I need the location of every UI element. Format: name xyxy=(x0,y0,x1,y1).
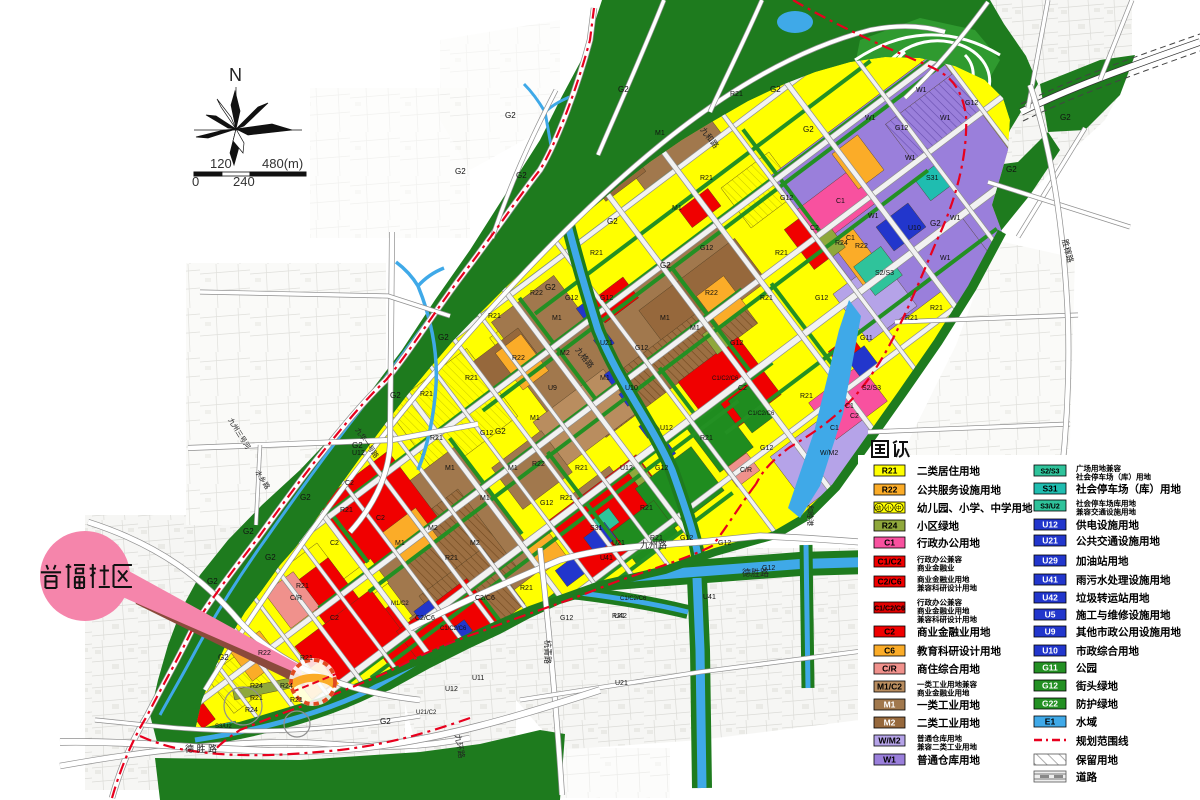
svg-text:公共服务设施用地: 公共服务设施用地 xyxy=(917,484,1001,497)
svg-text:C6: C6 xyxy=(884,646,895,656)
svg-text:S2/S3: S2/S3 xyxy=(1040,469,1059,476)
svg-text:R21: R21 xyxy=(430,435,443,442)
svg-text:W1: W1 xyxy=(883,755,896,765)
svg-text:E1: E1 xyxy=(1045,717,1056,727)
svg-text:C2: C2 xyxy=(884,627,895,637)
svg-text:W1: W1 xyxy=(868,213,879,220)
svg-text:G12: G12 xyxy=(895,125,908,132)
svg-text:W1: W1 xyxy=(905,155,916,162)
svg-text:U41: U41 xyxy=(703,594,716,601)
svg-text:M1: M1 xyxy=(884,700,896,710)
svg-text:U41: U41 xyxy=(600,555,613,562)
svg-text:S3/U2: S3/U2 xyxy=(1040,504,1060,511)
svg-text:U10: U10 xyxy=(625,385,638,392)
svg-text:U21: U21 xyxy=(612,540,625,547)
svg-text:M1: M1 xyxy=(600,375,610,382)
svg-text:G12: G12 xyxy=(730,340,743,347)
svg-text:R21: R21 xyxy=(930,305,943,312)
svg-text:G12: G12 xyxy=(965,100,978,107)
svg-text:G2: G2 xyxy=(218,653,229,662)
svg-text:C2/C6: C2/C6 xyxy=(415,615,435,622)
svg-text:兼容二类工业用地: 兼容二类工业用地 xyxy=(916,742,977,752)
svg-text:广场用地兼容: 广场用地兼容 xyxy=(1076,463,1121,473)
svg-text:M1: M1 xyxy=(552,315,562,322)
svg-text:G11: G11 xyxy=(860,335,873,342)
svg-text:C2: C2 xyxy=(330,615,339,622)
svg-text:G12: G12 xyxy=(680,535,693,542)
svg-text:U12: U12 xyxy=(445,686,458,693)
svg-text:垃圾转运站用地: 垃圾转运站用地 xyxy=(1076,592,1150,605)
svg-text:G12: G12 xyxy=(560,615,573,622)
svg-text:U5: U5 xyxy=(1045,610,1056,620)
svg-text:德 胜 路: 德 胜 路 xyxy=(185,743,217,754)
svg-text:C2: C2 xyxy=(330,540,339,547)
svg-text:市政综合用地: 市政综合用地 xyxy=(1076,645,1139,658)
svg-text:G2: G2 xyxy=(505,111,516,120)
svg-text:G12: G12 xyxy=(700,245,713,252)
svg-text:C2: C2 xyxy=(345,480,354,487)
svg-text:U21: U21 xyxy=(615,680,628,687)
svg-text:R21: R21 xyxy=(700,435,713,442)
svg-text:R21: R21 xyxy=(882,466,898,476)
svg-text:C1/C2/C6: C1/C2/C6 xyxy=(874,606,905,613)
svg-text:G12: G12 xyxy=(1042,681,1058,691)
svg-text:R22: R22 xyxy=(532,461,545,468)
svg-text:C1/C2/C6: C1/C2/C6 xyxy=(712,376,739,382)
svg-text:行政办公兼容: 行政办公兼容 xyxy=(916,554,962,564)
svg-text:G2: G2 xyxy=(545,283,556,292)
svg-text:R21: R21 xyxy=(340,507,353,514)
svg-text:C1/C2/C6: C1/C2/C6 xyxy=(440,626,467,632)
svg-text:120: 120 xyxy=(210,156,232,171)
svg-text:R21: R21 xyxy=(730,91,743,98)
svg-text:C2: C2 xyxy=(810,225,819,232)
svg-text:W1: W1 xyxy=(865,115,876,122)
svg-text:R24: R24 xyxy=(280,683,293,690)
svg-text:商业金融业: 商业金融业 xyxy=(917,563,955,573)
svg-text:R21: R21 xyxy=(760,295,773,302)
svg-text:街头绿地: 街头绿地 xyxy=(1075,680,1118,693)
svg-text:R21: R21 xyxy=(520,585,533,592)
svg-text:U21: U21 xyxy=(1042,536,1058,546)
svg-text:M1: M1 xyxy=(395,540,405,547)
svg-text:杭青路: 杭青路 xyxy=(543,640,553,664)
svg-text:保留用地: 保留用地 xyxy=(1075,754,1118,767)
svg-text:S31: S31 xyxy=(590,525,603,532)
svg-text:普通仓库用地: 普通仓库用地 xyxy=(917,733,962,743)
svg-text:C1/C2/C6: C1/C2/C6 xyxy=(748,411,775,417)
svg-text:G2: G2 xyxy=(660,261,671,270)
svg-text:G2: G2 xyxy=(243,527,254,536)
svg-text:G2: G2 xyxy=(770,85,781,94)
svg-text:G2: G2 xyxy=(300,493,311,502)
svg-text:G12: G12 xyxy=(760,445,773,452)
svg-text:W1: W1 xyxy=(916,87,927,94)
svg-text:G2: G2 xyxy=(265,553,276,562)
svg-text:教育科研设计用地: 教育科研设计用地 xyxy=(916,645,1001,658)
svg-text:R24: R24 xyxy=(835,240,848,247)
svg-text:0: 0 xyxy=(192,174,199,189)
svg-text:R22: R22 xyxy=(855,243,868,250)
svg-text:R24: R24 xyxy=(245,707,258,714)
svg-text:G2: G2 xyxy=(618,85,629,94)
svg-text:M2: M2 xyxy=(560,350,570,357)
svg-text:G22: G22 xyxy=(1042,699,1058,709)
svg-text:C2: C2 xyxy=(376,515,385,522)
svg-text:S2/S3: S2/S3 xyxy=(875,270,894,277)
svg-text:C2/C6: C2/C6 xyxy=(877,577,901,587)
svg-text:水域: 水域 xyxy=(1075,716,1098,729)
svg-text:U21: U21 xyxy=(600,340,613,347)
svg-text:德胜路: 德胜路 xyxy=(742,567,769,578)
svg-text:U10: U10 xyxy=(1042,646,1058,656)
svg-text:U21/C2: U21/C2 xyxy=(416,710,437,716)
svg-text:C/R: C/R xyxy=(290,595,302,602)
svg-text:U29: U29 xyxy=(1042,556,1058,566)
svg-text:九州路: 九州路 xyxy=(640,539,667,550)
svg-text:兼容科研设计用地: 兼容科研设计用地 xyxy=(916,614,977,624)
svg-text:G2: G2 xyxy=(1006,165,1017,174)
svg-text:U9: U9 xyxy=(1045,627,1056,637)
svg-text:雨污水处理设施用地: 雨污水处理设施用地 xyxy=(1076,574,1171,587)
svg-text:G12: G12 xyxy=(815,295,828,302)
svg-text:R22: R22 xyxy=(882,485,898,495)
svg-text:C/R: C/R xyxy=(882,664,897,674)
svg-text:商业金融业用地: 商业金融业用地 xyxy=(917,606,970,616)
svg-text:G2: G2 xyxy=(455,167,466,176)
svg-text:M1/C2: M1/C2 xyxy=(391,601,409,607)
svg-text:其他市政公用设施用地: 其他市政公用设施用地 xyxy=(1076,626,1181,639)
svg-text:G12: G12 xyxy=(565,295,578,302)
svg-text:S31: S31 xyxy=(926,175,939,182)
svg-text:G12: G12 xyxy=(718,540,731,547)
svg-text:G12: G12 xyxy=(780,195,793,202)
svg-text:R21: R21 xyxy=(590,250,603,257)
svg-text:C1: C1 xyxy=(845,403,854,410)
svg-text:二类工业用地: 二类工业用地 xyxy=(917,717,980,730)
svg-text:C2: C2 xyxy=(850,413,859,420)
svg-text:G2: G2 xyxy=(803,125,814,134)
svg-text:G12: G12 xyxy=(480,430,493,437)
svg-text:公园: 公园 xyxy=(1076,663,1097,675)
svg-text:M1: M1 xyxy=(690,325,700,332)
svg-text:M1: M1 xyxy=(508,465,518,472)
svg-text:R21: R21 xyxy=(300,655,313,662)
svg-text:商住综合用地: 商住综合用地 xyxy=(917,663,980,676)
svg-text:S3/U2: S3/U2 xyxy=(215,724,232,730)
svg-text:G12: G12 xyxy=(635,345,648,352)
svg-text:240: 240 xyxy=(233,174,255,189)
svg-text:M1: M1 xyxy=(530,415,540,422)
svg-text:G2: G2 xyxy=(438,333,449,342)
svg-text:U11: U11 xyxy=(472,675,484,682)
svg-text:和睦港: 和睦港 xyxy=(806,505,815,526)
svg-text:M1: M1 xyxy=(660,315,670,322)
svg-text:G12: G12 xyxy=(540,500,553,507)
svg-text:C1/C2: C1/C2 xyxy=(877,557,901,567)
svg-text:M1: M1 xyxy=(480,495,490,502)
svg-text:U12: U12 xyxy=(1042,520,1058,530)
svg-text:R21: R21 xyxy=(560,495,573,502)
svg-text:商业金融业用地: 商业金融业用地 xyxy=(917,688,970,698)
svg-text:R21: R21 xyxy=(905,315,918,322)
svg-text:幼儿园、小学、中学用地: 幼儿园、小学、中学用地 xyxy=(917,502,1033,515)
svg-text:U12: U12 xyxy=(620,465,633,472)
svg-text:社会停车场库用地: 社会停车场库用地 xyxy=(1075,498,1136,508)
svg-text:R21: R21 xyxy=(575,465,588,472)
svg-text:小区绿地: 小区绿地 xyxy=(916,520,959,533)
svg-text:小: 小 xyxy=(886,504,892,512)
svg-text:R22: R22 xyxy=(512,355,525,362)
svg-text:G2: G2 xyxy=(516,171,527,180)
svg-text:加油站用地: 加油站用地 xyxy=(1075,555,1129,568)
svg-text:G2: G2 xyxy=(1060,113,1071,122)
svg-text:R21: R21 xyxy=(296,583,309,590)
svg-text:R22: R22 xyxy=(705,290,718,297)
svg-text:W/M2: W/M2 xyxy=(878,736,900,746)
svg-text:兼容交通设施用地: 兼容交通设施用地 xyxy=(1075,507,1136,517)
svg-text:R24: R24 xyxy=(250,683,263,690)
svg-text:M1: M1 xyxy=(655,130,665,137)
svg-text:W1: W1 xyxy=(940,255,951,262)
svg-text:R21: R21 xyxy=(445,555,458,562)
svg-text:R21: R21 xyxy=(290,697,303,704)
svg-text:U12: U12 xyxy=(352,450,365,457)
svg-text:兼容科研设计用地: 兼容科研设计用地 xyxy=(916,583,977,593)
svg-text:一类工业用地: 一类工业用地 xyxy=(917,699,980,712)
svg-text:G2: G2 xyxy=(390,391,401,400)
svg-text:U42: U42 xyxy=(614,613,627,620)
svg-text:M1: M1 xyxy=(672,205,682,212)
svg-text:480(m): 480(m) xyxy=(262,156,303,171)
svg-text:R21: R21 xyxy=(700,175,713,182)
svg-text:U42: U42 xyxy=(1042,593,1058,603)
svg-text:中: 中 xyxy=(896,504,902,512)
svg-text:C2/C6: C2/C6 xyxy=(475,595,495,602)
svg-text:普通仓库用地: 普通仓库用地 xyxy=(917,754,980,767)
svg-text:商业金融业用地: 商业金融业用地 xyxy=(917,574,970,584)
svg-text:G2: G2 xyxy=(607,217,618,226)
svg-text:M2: M2 xyxy=(470,540,480,547)
svg-text:N: N xyxy=(229,65,242,85)
svg-text:G2: G2 xyxy=(380,717,391,726)
svg-text:M1: M1 xyxy=(445,465,455,472)
svg-text:R22: R22 xyxy=(258,650,271,657)
svg-text:C1: C1 xyxy=(884,538,895,548)
svg-text:G12: G12 xyxy=(600,295,613,302)
svg-text:商业金融业用地: 商业金融业用地 xyxy=(917,626,991,639)
svg-text:公共交通设施用地: 公共交通设施用地 xyxy=(1076,535,1160,548)
svg-text:行政办公用地: 行政办公用地 xyxy=(916,537,980,550)
svg-text:C2: C2 xyxy=(738,385,747,392)
svg-text:G12: G12 xyxy=(655,465,668,472)
svg-text:U9: U9 xyxy=(548,385,557,392)
svg-text:W1: W1 xyxy=(950,215,961,222)
svg-text:R22: R22 xyxy=(530,290,543,297)
svg-text:R21: R21 xyxy=(488,313,501,320)
svg-text:S2/S3: S2/S3 xyxy=(862,385,881,392)
svg-text:C1: C1 xyxy=(836,198,845,205)
svg-text:U41: U41 xyxy=(1042,575,1058,585)
svg-text:R21: R21 xyxy=(640,505,653,512)
svg-text:R21: R21 xyxy=(465,375,478,382)
svg-text:社会停车场（库）用地: 社会停车场（库）用地 xyxy=(1075,472,1151,482)
svg-text:C1: C1 xyxy=(830,425,839,432)
svg-text:防护绿地: 防护绿地 xyxy=(1076,698,1118,711)
svg-text:R24: R24 xyxy=(882,521,898,531)
svg-text:W1: W1 xyxy=(940,115,951,122)
svg-text:G2: G2 xyxy=(930,219,941,228)
svg-text:行政办公兼容: 行政办公兼容 xyxy=(916,597,962,607)
svg-text:R21: R21 xyxy=(420,391,433,398)
svg-text:幼: 幼 xyxy=(876,504,882,512)
svg-text:M2: M2 xyxy=(428,525,438,532)
svg-text:社会停车场（库）用地: 社会停车场（库）用地 xyxy=(1075,483,1181,496)
svg-text:C1/C2/C6: C1/C2/C6 xyxy=(620,596,647,602)
svg-text:U12: U12 xyxy=(660,425,673,432)
svg-text:W/M2: W/M2 xyxy=(820,450,838,457)
svg-text:G2: G2 xyxy=(495,427,506,436)
svg-text:G11: G11 xyxy=(1042,663,1058,673)
svg-text:G2: G2 xyxy=(207,577,218,586)
svg-text:道路: 道路 xyxy=(1076,771,1098,784)
svg-text:R21: R21 xyxy=(775,250,788,257)
svg-text:M1/C2: M1/C2 xyxy=(877,682,902,692)
svg-text:C/R: C/R xyxy=(740,467,752,474)
svg-text:S31: S31 xyxy=(1042,484,1057,494)
svg-text:一类工业用地兼容: 一类工业用地兼容 xyxy=(917,679,977,689)
svg-text:供电设施用地: 供电设施用地 xyxy=(1075,519,1139,532)
svg-text:R21: R21 xyxy=(800,393,813,400)
svg-text:M2: M2 xyxy=(884,718,896,728)
svg-text:二类居住用地: 二类居住用地 xyxy=(917,465,980,478)
svg-text:规划范围线: 规划范围线 xyxy=(1076,735,1129,748)
svg-text:U10: U10 xyxy=(908,225,921,232)
svg-text:施工与维修设施用地: 施工与维修设施用地 xyxy=(1076,609,1171,622)
svg-text:R21: R21 xyxy=(250,695,263,702)
